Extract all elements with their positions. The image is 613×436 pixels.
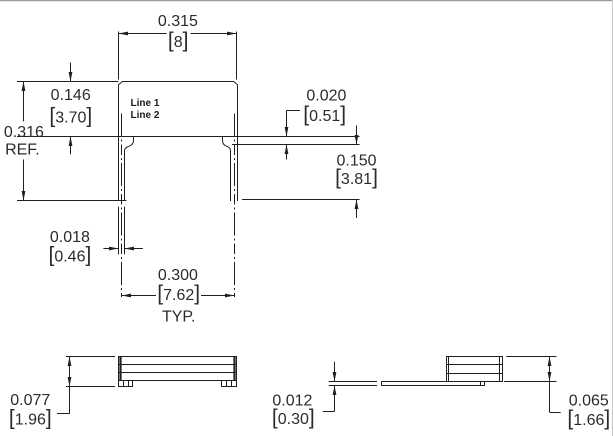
svg-text:0.065: 0.065 [569,393,609,410]
svg-text:0.146: 0.146 [51,87,91,104]
svg-text:TYP.: TYP. [162,308,196,325]
svg-text:0.077: 0.077 [10,392,50,409]
svg-text:Line 1: Line 1 [131,98,160,109]
svg-text:REF.: REF. [5,142,40,159]
svg-text:0.315: 0.315 [158,13,198,30]
svg-text:0.316: 0.316 [4,124,44,141]
svg-text:Line 2: Line 2 [131,110,160,121]
svg-text:0.018: 0.018 [50,229,90,246]
svg-text:0.150: 0.150 [336,153,376,170]
svg-text:0.300: 0.300 [158,267,198,284]
svg-text:0.012: 0.012 [272,392,312,409]
